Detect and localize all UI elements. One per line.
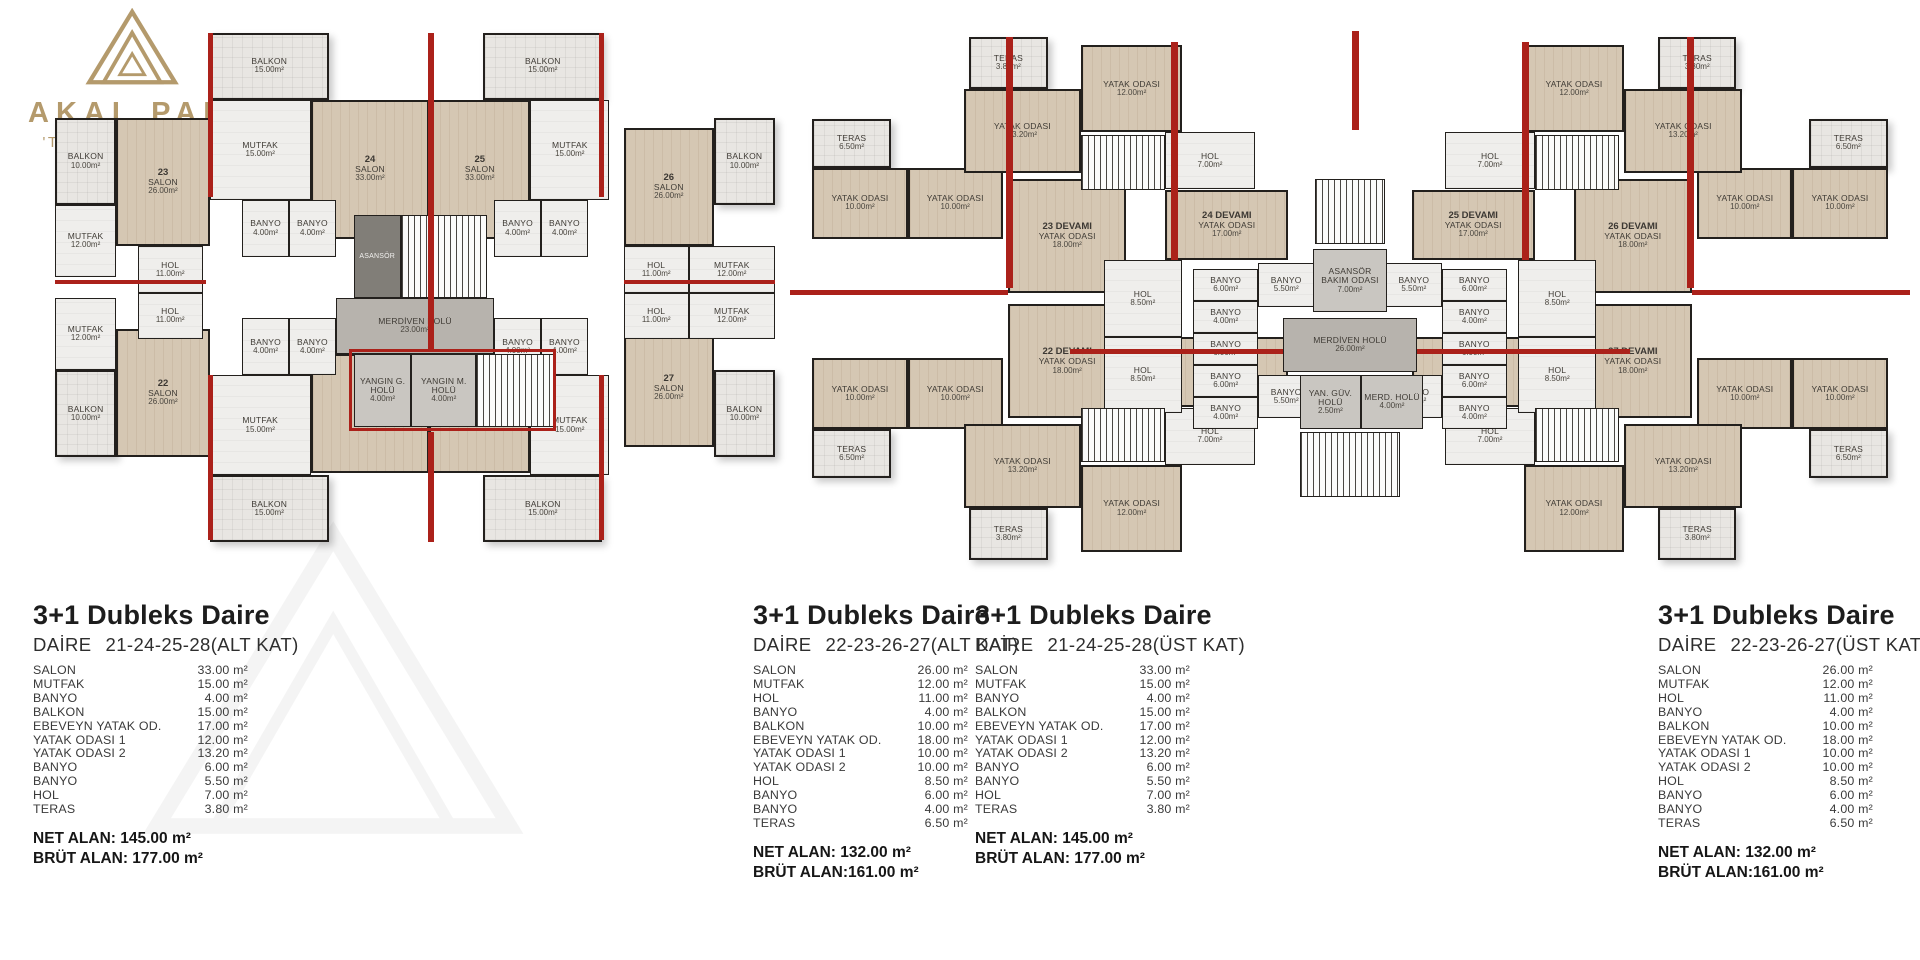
teras-38-top-right: TERAS3.80m²	[1658, 37, 1736, 89]
spec-row: TERAS6.50 m²	[1658, 817, 1873, 831]
spec-row: TERAS6.50 m²	[753, 817, 968, 831]
spec-row: BANYO4.00 m²	[1658, 803, 1873, 817]
banyo-6-r1: BANYO6.00m²	[1442, 269, 1507, 301]
red-line-h-wing-right	[1692, 290, 1910, 294]
balkon-10-right-top: BALKON10.00m²	[714, 118, 775, 206]
spec-row: BANYO6.00 m²	[33, 761, 248, 775]
salon-22: 22SALON26.00m²	[116, 329, 210, 458]
red-line-h-right	[624, 280, 775, 284]
hol-85-left-bottom: HOL8.50m²	[1104, 337, 1182, 413]
spec-row: HOL8.50 m²	[753, 775, 968, 789]
yatak-1320-bottom-right: YATAK ODASI13.20m²	[1624, 424, 1742, 508]
spec-row: EBEVEYN YATAK OD.17.00 m²	[975, 720, 1190, 734]
red-line-v-left	[1006, 37, 1013, 288]
yatak-10-rt-1: YATAK ODASI10.00m²	[1792, 168, 1887, 239]
floor-plan-alt-kat: BALKON15.00m²BALKON15.00m²BALKON10.00m²B…	[55, 30, 775, 545]
balkon-15-bottom-right: BALKON15.00m²	[483, 475, 602, 542]
red-line-v-center	[428, 33, 434, 352]
yan-guv-holu: YAN. GÜV. HOLÜ2.50m²	[1300, 375, 1362, 430]
balkon-10-left-top: BALKON10.00m²	[55, 118, 116, 206]
spec-row: TERAS3.80 m²	[975, 803, 1190, 817]
spiral-stairs-top-right	[1535, 135, 1619, 190]
red-box-yangin	[349, 349, 556, 430]
net-alan: NET ALAN: 132.00 m²	[1658, 844, 1873, 862]
spec-title: 3+1 Dubleks Daire	[975, 600, 1190, 631]
balkon-10-left-bottom: BALKON10.00m²	[55, 370, 116, 458]
spec-room-list: SALON26.00 m²MUTFAK12.00 m²HOL11.00 m²BA…	[1658, 664, 1873, 831]
yatak-12-top-right: YATAK ODASI12.00m²	[1524, 45, 1625, 132]
daire-numbers: 21-24-25-28(ÜST KAT)	[1048, 634, 1246, 655]
floor-plan-ust-kat: TERAS6.50m²YATAK ODASI10.00m²YATAK ODASI…	[790, 26, 1910, 571]
yatak-10-rt-2: YATAK ODASI10.00m²	[1697, 168, 1792, 239]
banyo-6-l1: BANYO6.00m²	[1193, 269, 1258, 301]
spec-row: EBEVEYN YATAK OD.17.00 m²	[33, 720, 248, 734]
spec-row: HOL11.00 m²	[1658, 692, 1873, 706]
spec-row: YATAK ODASI 210.00 m²	[753, 761, 968, 775]
spec-row: MUTFAK12.00 m²	[753, 678, 968, 692]
stairs-center-top	[1315, 179, 1384, 244]
yatak-10-rb-2: YATAK ODASI10.00m²	[1697, 358, 1792, 429]
spec-row: YATAK ODASI 112.00 m²	[975, 734, 1190, 748]
merd-holu: MERD. HOLÜ4.00m²	[1361, 375, 1423, 430]
yatak-devami-25: 25 DEVAMIYATAK ODASI17.00m²	[1412, 190, 1535, 261]
spec-room-list: SALON33.00 m²MUTFAK15.00 m²BANYO4.00 m²B…	[33, 664, 248, 817]
spec-row: BALKON10.00 m²	[1658, 720, 1873, 734]
net-alan: NET ALAN: 145.00 m²	[33, 830, 248, 848]
spec-row: HOL11.00 m²	[753, 692, 968, 706]
red-line-v-inner-right	[1522, 42, 1529, 260]
salon-26: 26SALON26.00m²	[624, 128, 714, 246]
daire-label: DAİRE	[33, 634, 92, 655]
spec-subtitle: DAİRE21-24-25-28(ÜST KAT)	[975, 634, 1190, 656]
spec-row: BANYO4.00 m²	[1658, 706, 1873, 720]
spec-block-alt-kat-22-23-26-27: 3+1 Dubleks Daire DAİRE22-23-26-27(ALT K…	[753, 600, 968, 882]
balkon-15-top-right: BALKON15.00m²	[483, 33, 602, 100]
spec-room-list: SALON26.00 m²MUTFAK12.00 m²HOL11.00 m²BA…	[753, 664, 968, 831]
hol-11-left-top: HOL11.00m²	[138, 246, 203, 292]
daire-numbers: 21-24-25-28(ALT KAT)	[106, 634, 299, 655]
spec-row: BALKON10.00 m²	[753, 720, 968, 734]
spec-row: MUTFAK15.00 m²	[975, 678, 1190, 692]
spec-row: BANYO6.00 m²	[1658, 789, 1873, 803]
yatak-12-bottom-right: YATAK ODASI12.00m²	[1524, 465, 1625, 552]
red-line-v-right	[1687, 37, 1694, 288]
banyo-55-left-top: BANYO5.50m²	[1258, 263, 1314, 307]
red-line-h-wing-left	[790, 290, 1008, 294]
banyo-4-l2: BANYO4.00m²	[1193, 301, 1258, 333]
spec-row: HOL7.00 m²	[33, 789, 248, 803]
banyo-4-top-2: BANYO4.00m²	[289, 200, 336, 257]
yatak-devami-24: 24 DEVAMIYATAK ODASI17.00m²	[1165, 190, 1288, 261]
spec-row: YATAK ODASI 112.00 m²	[33, 734, 248, 748]
asansor: ASANSÖR	[354, 215, 401, 297]
yatak-1320-top-right: YATAK ODASI13.20m²	[1624, 89, 1742, 173]
teras-65-right-top: TERAS6.50m²	[1809, 119, 1887, 168]
banyo-4-top-3: BANYO4.00m²	[494, 200, 541, 257]
spec-row: BANYO5.50 m²	[975, 775, 1190, 789]
banyo-55-right-top: BANYO5.50m²	[1386, 263, 1442, 307]
banyo-4-bottom-2: BANYO4.00m²	[289, 318, 336, 375]
yatak-12-top-left: YATAK ODASI12.00m²	[1081, 45, 1182, 132]
daire-numbers: 22-23-26-27(ÜST KAT)	[1731, 634, 1920, 655]
yatak-10-lt-1: YATAK ODASI10.00m²	[812, 168, 907, 239]
red-line-h-mid-right	[1417, 349, 1630, 354]
banyo-4-r5: BANYO4.00m²	[1442, 397, 1507, 429]
spec-row: YATAK ODASI 110.00 m²	[1658, 747, 1873, 761]
spec-row: BALKON15.00 m²	[975, 706, 1190, 720]
hol-7-top-right: HOL7.00m²	[1445, 132, 1535, 189]
daire-label: DAİRE	[753, 634, 812, 655]
stairs-top	[401, 215, 487, 297]
balkon-10-right-bottom: BALKON10.00m²	[714, 370, 775, 458]
spec-row: HOL8.50 m²	[1658, 775, 1873, 789]
salon-23: 23SALON26.00m²	[116, 118, 210, 247]
spec-row: SALON33.00 m²	[33, 664, 248, 678]
spec-row: EBEVEYN YATAK OD.18.00 m²	[753, 734, 968, 748]
hol-11-right-top: HOL11.00m²	[624, 246, 689, 292]
spec-row: BANYO6.00 m²	[753, 789, 968, 803]
hol-11-right-bottom: HOL11.00m²	[624, 293, 689, 339]
spec-row: MUTFAK12.00 m²	[1658, 678, 1873, 692]
spec-row: YATAK ODASI 110.00 m²	[753, 747, 968, 761]
balkon-15-top-left: BALKON15.00m²	[210, 33, 329, 100]
spec-block-ust-kat-21-24-25-28: 3+1 Dubleks Daire DAİRE21-24-25-28(ÜST K…	[975, 600, 1190, 868]
mutfak-15-top-right: MUTFAK15.00m²	[530, 100, 609, 200]
spec-row: BANYO5.50 m²	[33, 775, 248, 789]
spec-row: BALKON15.00 m²	[33, 706, 248, 720]
banyo-4-bottom-1: BANYO4.00m²	[242, 318, 289, 375]
spec-row: SALON26.00 m²	[1658, 664, 1873, 678]
brut-alan: BRÜT ALAN:161.00 m²	[753, 864, 968, 882]
mutfak-12-right-top: MUTFAK12.00m²	[689, 246, 775, 292]
spec-subtitle: DAİRE22-23-26-27(ÜST KAT)	[1658, 634, 1873, 656]
spec-subtitle: DAİRE22-23-26-27(ALT KAT)	[753, 634, 968, 656]
spec-block-alt-kat-21-24-25-28: 3+1 Dubleks Daire DAİRE21-24-25-28(ALT K…	[33, 600, 248, 868]
brut-alan: BRÜT ALAN:161.00 m²	[1658, 864, 1873, 882]
spec-row: SALON26.00 m²	[753, 664, 968, 678]
spec-row: YATAK ODASI 213.20 m²	[975, 747, 1190, 761]
spiral-stairs-bottom-right	[1535, 408, 1619, 463]
spiral-stairs-top-left	[1081, 135, 1165, 190]
spec-row: HOL7.00 m²	[975, 789, 1190, 803]
yatak-10-rb-1: YATAK ODASI10.00m²	[1792, 358, 1887, 429]
mutfak-12-right-bottom: MUTFAK12.00m²	[689, 293, 775, 339]
salon-27: 27SALON26.00m²	[624, 329, 714, 447]
teras-38-bottom-left: TERAS3.80m²	[969, 508, 1047, 560]
teras-65-left-bottom: TERAS6.50m²	[812, 429, 890, 478]
spec-row: BANYO4.00 m²	[753, 803, 968, 817]
banyo-6-l4: BANYO6.00m²	[1193, 365, 1258, 397]
hol-85-right-bottom: HOL8.50m²	[1518, 337, 1596, 413]
spec-row: EBEVEYN YATAK OD.18.00 m²	[1658, 734, 1873, 748]
mutfak-12-left-bottom: MUTFAK12.00m²	[55, 298, 116, 370]
spec-title: 3+1 Dubleks Daire	[33, 600, 248, 631]
red-line-v-center-b	[428, 432, 434, 543]
brut-alan: BRÜT ALAN: 177.00 m²	[975, 850, 1190, 868]
spec-row: TERAS3.80 m²	[33, 803, 248, 817]
spiral-stairs-bottom-left	[1081, 408, 1165, 463]
banyo-6-r4: BANYO6.00m²	[1442, 365, 1507, 397]
spec-row: MUTFAK15.00 m²	[33, 678, 248, 692]
spec-row: BANYO6.00 m²	[975, 761, 1190, 775]
spec-row: YATAK ODASI 213.20 m²	[33, 747, 248, 761]
akal-park-floor-plan-sheet: AKAL PARK 'TEMELDEN GÜVEN' BALKON15.00m²…	[0, 0, 1920, 960]
spec-row: BANYO4.00 m²	[753, 706, 968, 720]
banyo-4-l5: BANYO4.00m²	[1193, 397, 1258, 429]
red-line-h-left	[55, 280, 206, 284]
hol-7-top-left: HOL7.00m²	[1165, 132, 1255, 189]
banyo-4-top-4: BANYO4.00m²	[541, 200, 588, 257]
red-line-h-mid-left	[1070, 349, 1283, 354]
asansor-bakim-odasi: ASANSÖR BAKIM ODASI7.00m²	[1313, 249, 1387, 312]
spec-row: SALON33.00 m²	[975, 664, 1190, 678]
teras-38-bottom-right: TERAS3.80m²	[1658, 508, 1736, 560]
yatak-10-lb-2: YATAK ODASI10.00m²	[908, 358, 1003, 429]
banyo-4-r2: BANYO4.00m²	[1442, 301, 1507, 333]
mutfak-15-top-left: MUTFAK15.00m²	[210, 100, 311, 200]
mutfak-15-bottom-left: MUTFAK15.00m²	[210, 375, 311, 475]
hol-85-left-top: HOL8.50m²	[1104, 260, 1182, 336]
spec-title: 3+1 Dubleks Daire	[1658, 600, 1873, 631]
red-line-v-inner-left	[1171, 42, 1178, 260]
net-alan: NET ALAN: 145.00 m²	[975, 830, 1190, 848]
red-line-v-left	[208, 33, 213, 198]
hol-85-right-top: HOL8.50m²	[1518, 260, 1596, 336]
spec-row: BANYO4.00 m²	[975, 692, 1190, 706]
yatak-10-lb-1: YATAK ODASI10.00m²	[812, 358, 907, 429]
red-line-v-center-top	[1352, 31, 1359, 129]
merdiven-holu: MERDİVEN HOLÜ23.00m²	[336, 298, 494, 355]
mutfak-12-left-top: MUTFAK12.00m²	[55, 205, 116, 277]
spec-row: YATAK ODASI 210.00 m²	[1658, 761, 1873, 775]
red-line-v-left-b	[208, 375, 213, 540]
spec-row: BANYO4.00 m²	[33, 692, 248, 706]
banyo-4-top-1: BANYO4.00m²	[242, 200, 289, 257]
red-line-v-right-b	[599, 375, 604, 540]
daire-label: DAİRE	[975, 634, 1034, 655]
spec-title: 3+1 Dubleks Daire	[753, 600, 968, 631]
daire-label: DAİRE	[1658, 634, 1717, 655]
spec-block-ust-kat-22-23-26-27: 3+1 Dubleks Daire DAİRE22-23-26-27(ÜST K…	[1658, 600, 1873, 882]
yatak-1320-top-left: YATAK ODASI13.20m²	[964, 89, 1082, 173]
teras-65-left-top: TERAS6.50m²	[812, 119, 890, 168]
teras-65-right-bottom: TERAS6.50m²	[1809, 429, 1887, 478]
brut-alan: BRÜT ALAN: 177.00 m²	[33, 850, 248, 868]
net-alan: NET ALAN: 132.00 m²	[753, 844, 968, 862]
red-line-v-right	[599, 33, 604, 198]
hol-11-left-bottom: HOL11.00m²	[138, 293, 203, 339]
spec-subtitle: DAİRE21-24-25-28(ALT KAT)	[33, 634, 248, 656]
stairs-center-bottom	[1300, 432, 1401, 497]
yatak-12-bottom-left: YATAK ODASI12.00m²	[1081, 465, 1182, 552]
spec-room-list: SALON33.00 m²MUTFAK15.00 m²BANYO4.00 m²B…	[975, 664, 1190, 817]
yatak-1320-bottom-left: YATAK ODASI13.20m²	[964, 424, 1082, 508]
merdiven-holu-ust: MERDİVEN HOLÜ26.00m²	[1283, 318, 1417, 373]
balkon-15-bottom-left: BALKON15.00m²	[210, 475, 329, 542]
yatak-10-lt-2: YATAK ODASI10.00m²	[908, 168, 1003, 239]
